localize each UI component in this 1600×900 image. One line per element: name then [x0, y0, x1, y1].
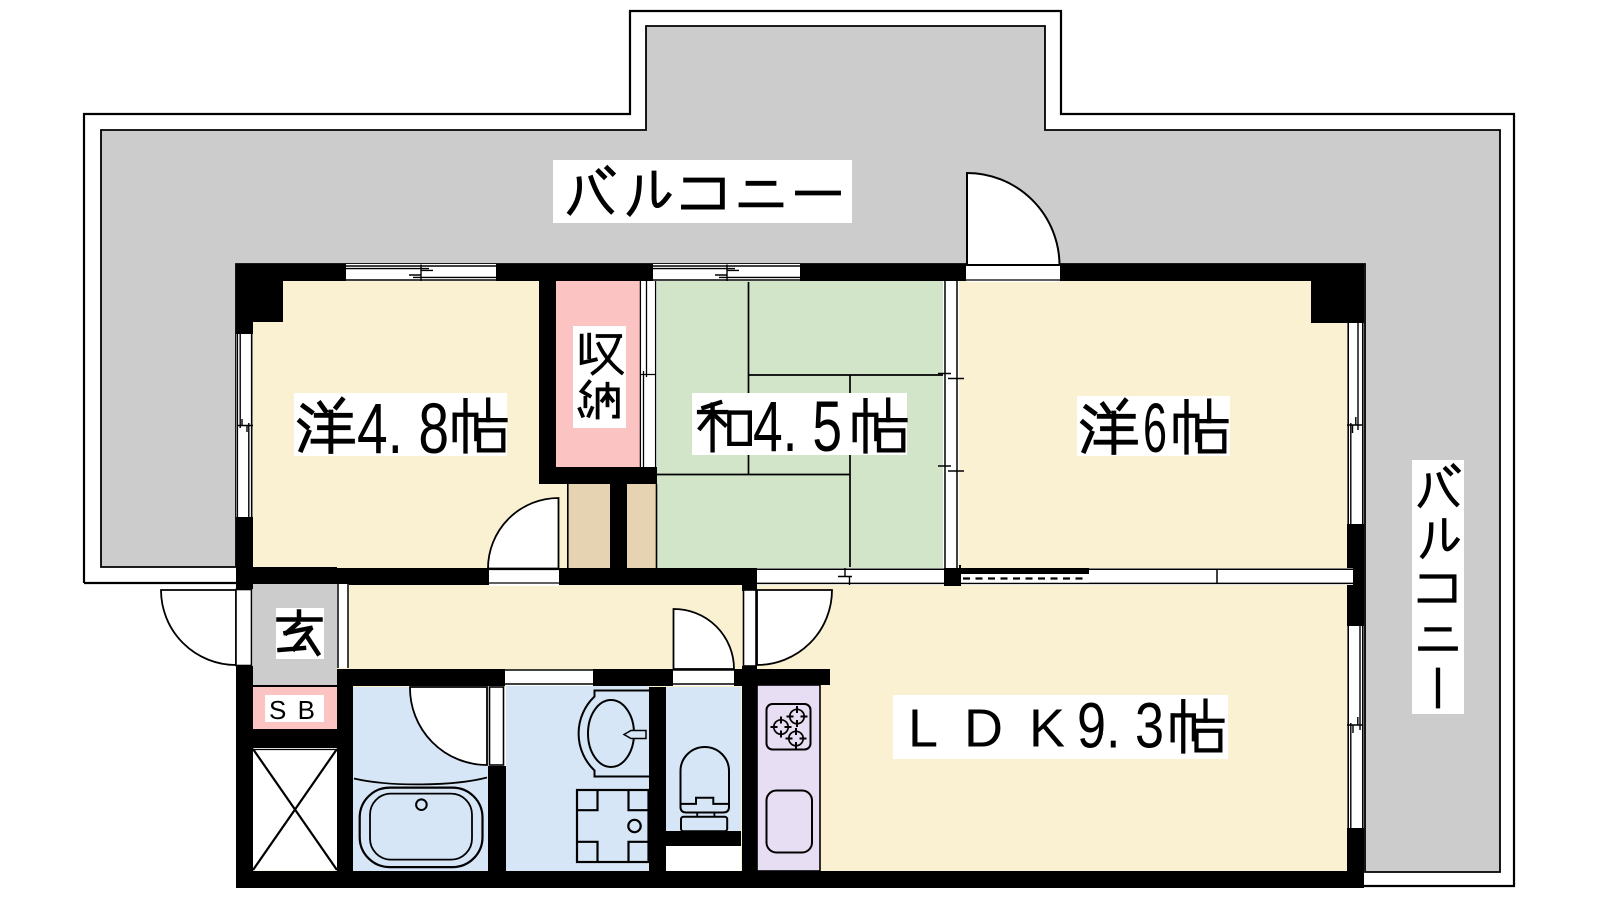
- svg-text:6: 6: [1143, 389, 1167, 467]
- svg-text:LDK: LDK: [908, 699, 1091, 759]
- svg-text:9. 3: 9. 3: [1077, 690, 1164, 762]
- svg-text:S B: S B: [269, 695, 317, 725]
- svg-text:4. 5: 4. 5: [753, 388, 842, 467]
- svg-text:4. 8: 4. 8: [357, 390, 449, 469]
